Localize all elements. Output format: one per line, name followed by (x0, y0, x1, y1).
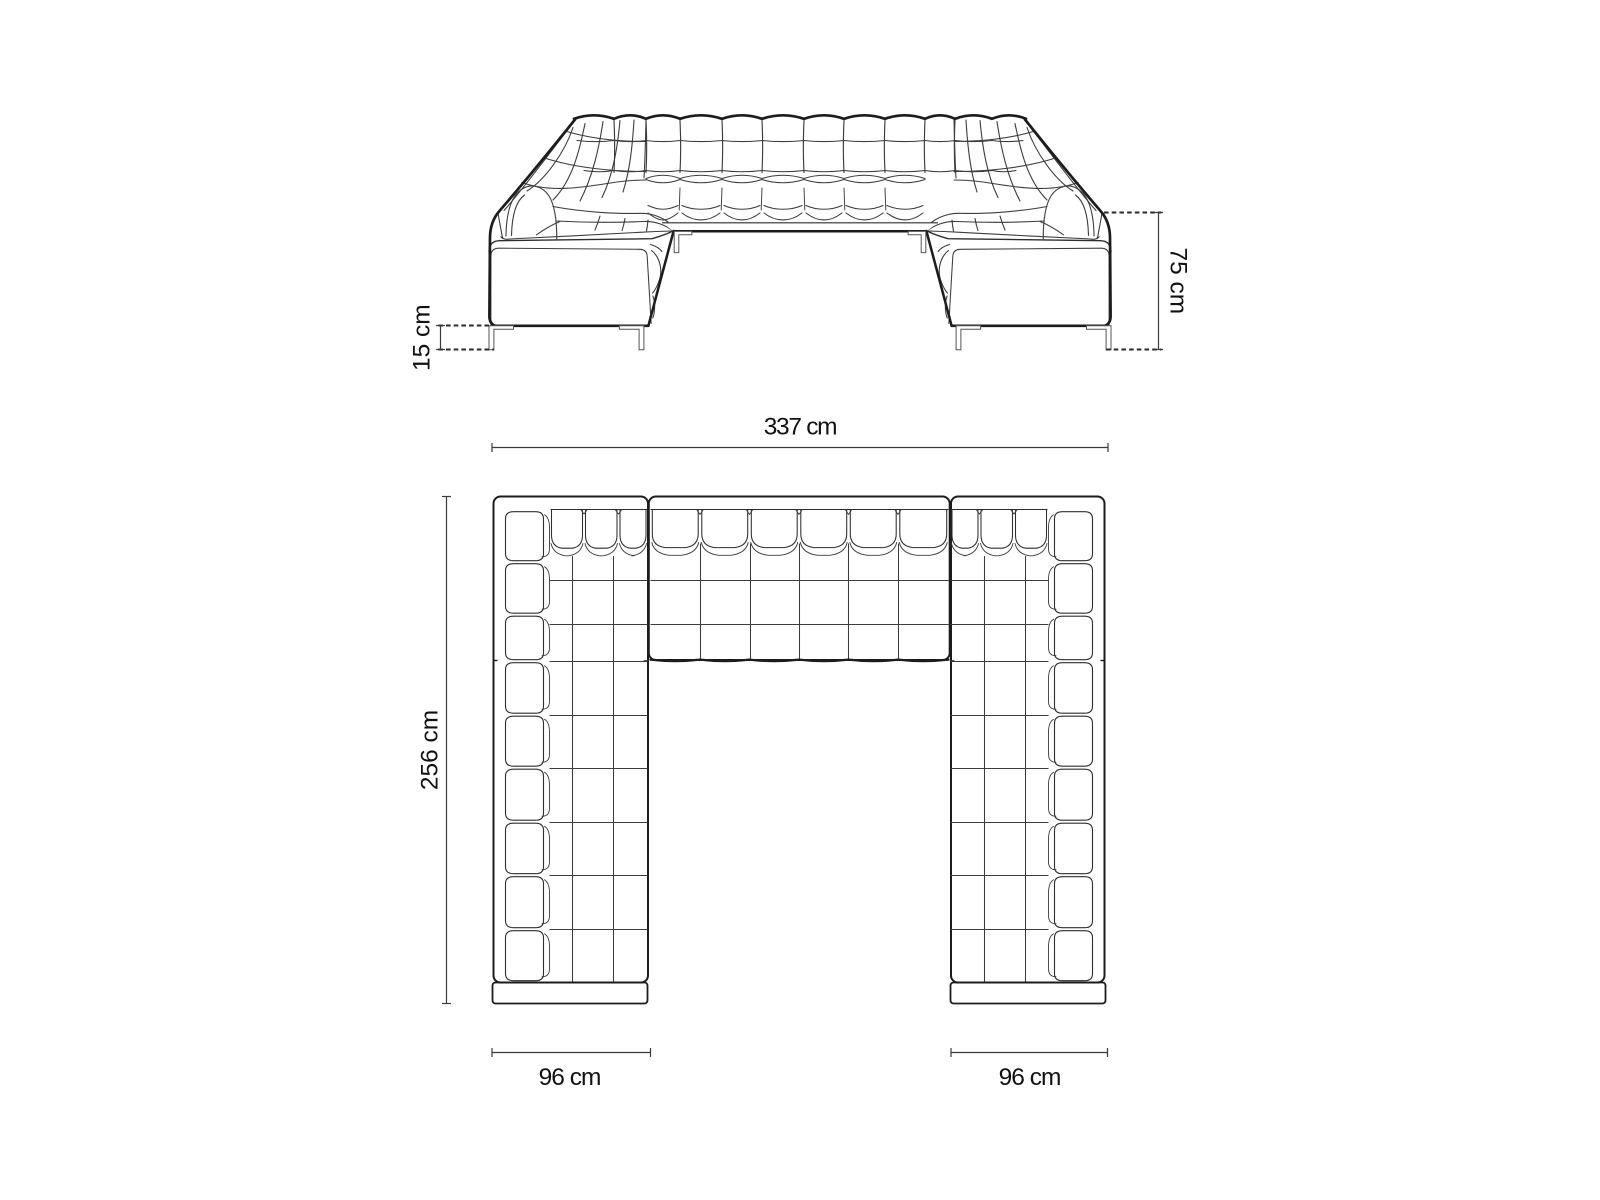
svg-text:75 cm: 75 cm (1165, 247, 1192, 314)
svg-text:96 cm: 96 cm (999, 1064, 1061, 1091)
svg-text:337 cm: 337 cm (764, 414, 837, 441)
svg-text:15 cm: 15 cm (409, 304, 436, 371)
svg-text:256 cm: 256 cm (417, 710, 444, 790)
svg-text:96 cm: 96 cm (539, 1064, 601, 1091)
